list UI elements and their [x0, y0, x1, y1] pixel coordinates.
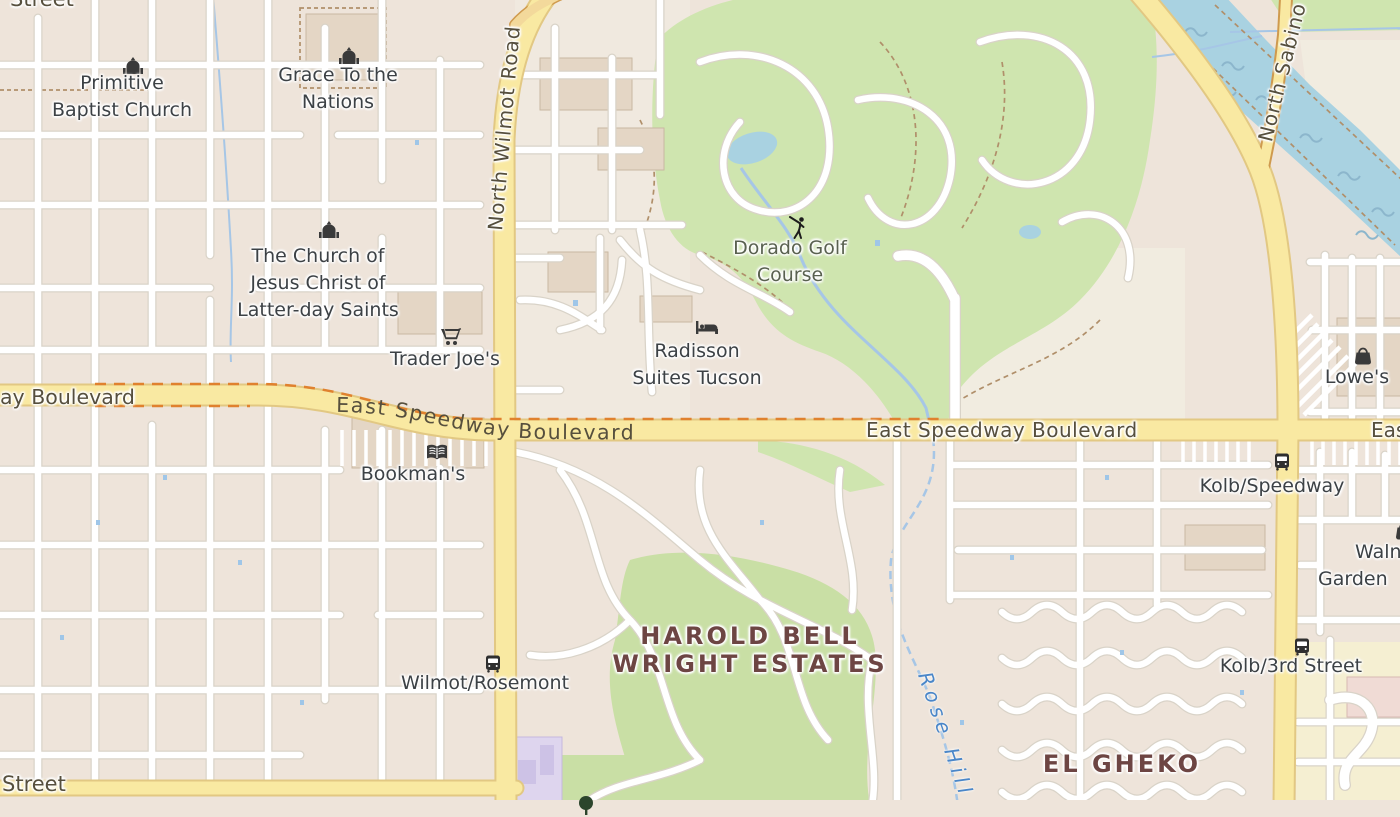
poi-line: Grace To the [278, 62, 398, 89]
poi-label-grace-to-the-nations: Grace To the Nations [278, 62, 398, 116]
poi-line: Latter-day Saints [237, 297, 399, 324]
poi-line: Trader Joe's [390, 346, 500, 373]
poi-line: Suites Tucson [632, 365, 761, 392]
poi-line: Kolb/3rd Street [1220, 653, 1362, 680]
poi-label-primitive-baptist-church: Primitive Baptist Church [52, 70, 192, 124]
poi-label-lds-church: The Church of Jesus Christ of Latter-day… [237, 243, 399, 324]
poi-line: Primitive [52, 70, 192, 97]
school-building [518, 760, 536, 784]
poi-line: Bookman's [361, 461, 466, 488]
road-label-speedway-center: East Speedway Boulevard [866, 418, 1138, 442]
poi-line: Dorado Golf [733, 235, 847, 262]
poi-label-radisson-suites: Radisson Suites Tucson [632, 338, 761, 392]
map-screenshot: { "map": { "type": "street-map-tile-view… [0, 0, 1400, 800]
district-line: WRIGHT ESTATES [612, 650, 887, 678]
poi-line: Nations [278, 89, 398, 116]
poi-line: Garden [1318, 568, 1388, 590]
district-line: EL GHEKO [1043, 750, 1201, 778]
poi-line: Wilmot/Rosemont [401, 670, 569, 697]
school-building [540, 745, 554, 775]
road-label-speedway-right: East Speedw [1371, 418, 1400, 442]
poi-label-wilmot-rosemont-stop: Wilmot/Rosemont [401, 670, 569, 697]
poi-label-dorado-golf-course: Dorado Golf Course [733, 235, 847, 289]
road-label-street-top: Street [10, 0, 74, 11]
map-graphics: East Speedway Boulevard [0, 0, 1400, 800]
poi-label-kolb-3rd-stop: Kolb/3rd Street [1220, 653, 1362, 680]
road-label-speedway-left: ay Boulevard [0, 385, 135, 409]
district-label-el-gheko: EL GHEKO [1043, 750, 1201, 778]
poi-label-lowes: Lowe's [1325, 364, 1389, 391]
poi-label-kolb-speedway-stop: Kolb/Speedway [1200, 473, 1345, 500]
poi-line: Kolb/Speedway [1200, 473, 1345, 500]
poi-label-trader-joes: Trader Joe's [390, 346, 500, 373]
road-label-street-bottom: Street [2, 772, 66, 796]
district-label-harold-bell-wright: HAROLD BELL WRIGHT ESTATES [612, 622, 887, 678]
poi-line: Jesus Christ of [237, 270, 399, 297]
poi-line: Course [733, 262, 847, 289]
poi-label-garden: Garden [1318, 568, 1388, 590]
map-canvas[interactable]: East Speedway Boulevard Primitive Baptis… [0, 0, 1400, 800]
poi-line: Radisson [632, 338, 761, 365]
poi-label-bookmans: Bookman's [361, 461, 466, 488]
poi-line: Walnut [1355, 541, 1400, 563]
pond-small [1019, 225, 1041, 239]
poi-line: The Church of [237, 243, 399, 270]
district-line: HAROLD BELL [612, 622, 887, 650]
poi-label-walnut: Walnut [1355, 541, 1400, 563]
poi-line: Lowe's [1325, 364, 1389, 391]
poi-line: Baptist Church [52, 97, 192, 124]
